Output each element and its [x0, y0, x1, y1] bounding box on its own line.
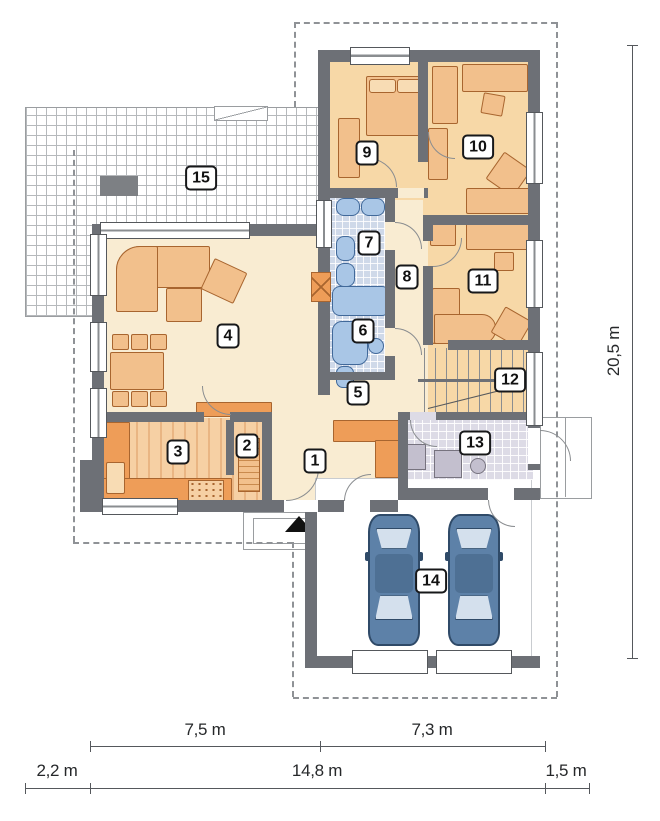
room-label-9: 9: [356, 141, 379, 166]
wall: [305, 510, 317, 668]
dimension-tick: [627, 45, 638, 46]
sink: [336, 198, 360, 216]
bed-pillow: [369, 79, 396, 93]
window: [526, 240, 543, 308]
car-rear-window: [376, 528, 412, 549]
dining-chair: [150, 334, 167, 350]
room-label-10: 10: [462, 135, 494, 160]
property-line: [292, 542, 294, 697]
hall-wardrobe-side: [375, 440, 399, 478]
garage-door: [436, 650, 512, 674]
room-label-5: 5: [347, 381, 370, 406]
appliance: [434, 450, 462, 478]
room-label-6: 6: [352, 319, 375, 344]
dimension-line: [90, 746, 545, 747]
bathroom-window: [316, 200, 332, 248]
bathtub: [332, 286, 390, 316]
wall: [80, 460, 92, 512]
floor-plan: 1 2 3 4 5 6 7 8 9 10 11 12 13 14 15 7,5 …: [0, 0, 660, 821]
wall: [418, 62, 428, 162]
door-opening: [410, 412, 436, 420]
car-mirror: [418, 552, 423, 561]
wall: [92, 412, 204, 422]
wall: [423, 225, 433, 241]
property-line: [294, 22, 557, 24]
dimension-line: [25, 788, 590, 789]
wall: [423, 266, 433, 345]
dining-chair: [112, 334, 129, 350]
dim-1-5: 1,5 m: [545, 761, 586, 781]
dimension-tick: [545, 783, 546, 794]
room-label-4: 4: [217, 324, 240, 349]
dimension-tick: [589, 783, 590, 794]
sink: [361, 198, 385, 216]
car-mirror: [498, 552, 503, 561]
wall: [448, 340, 533, 350]
car-mirror: [365, 552, 370, 561]
car-mirror: [445, 552, 450, 561]
wall: [262, 418, 272, 500]
door-opening: [385, 328, 395, 356]
car-rear-window: [456, 528, 492, 549]
wall: [328, 372, 395, 380]
room-label-1: 1: [304, 449, 327, 474]
room-label-11: 11: [468, 269, 499, 294]
dining-table: [110, 352, 164, 390]
front-door-opening: [284, 500, 318, 512]
terrace-planter: [100, 176, 138, 196]
room-label-8: 8: [396, 265, 419, 290]
property-line: [556, 22, 558, 697]
dimension-tick: [545, 741, 546, 752]
coffee-table: [166, 288, 202, 322]
window: [526, 112, 543, 184]
dim-14-8: 14,8 m: [292, 761, 342, 781]
dimension-tick: [25, 783, 26, 794]
car-roof: [375, 554, 413, 592]
wall: [226, 420, 234, 475]
dimension-tick: [627, 658, 638, 659]
dining-chair: [112, 391, 129, 407]
room-label-13: 13: [459, 431, 491, 456]
dim-7-5: 7,5 m: [184, 720, 225, 740]
window: [90, 388, 107, 438]
wall: [398, 415, 408, 488]
dimension-tick: [320, 741, 321, 752]
car: [448, 514, 500, 646]
dining-chair: [131, 391, 148, 407]
floor-drain: [470, 458, 486, 474]
room-label-2: 2: [236, 434, 259, 459]
dimension-line: [632, 45, 633, 658]
desk-stool: [480, 92, 505, 117]
utility-exterior-door: [528, 428, 540, 464]
room-label-14: 14: [415, 569, 447, 594]
bedroom10-bed: [466, 188, 532, 214]
dim-7-3: 7,3 m: [411, 720, 452, 740]
garage-door: [352, 650, 428, 674]
sofa-left-arm: [116, 246, 158, 312]
dimension-tick: [90, 741, 91, 752]
dim-20-5: 20,5 m: [604, 326, 624, 376]
corner-window-side: [90, 234, 107, 296]
door-opening: [385, 222, 395, 250]
door-opening: [488, 488, 514, 500]
car-roof: [455, 554, 493, 592]
property-line: [73, 542, 293, 544]
property-line: [73, 150, 75, 542]
window: [90, 322, 107, 372]
car: [368, 514, 420, 646]
room-label-12: 12: [494, 368, 526, 393]
bidet: [336, 236, 355, 261]
wall: [423, 215, 533, 225]
corner-window-top: [100, 222, 250, 239]
dining-chair: [150, 391, 167, 407]
room-label-15: 15: [185, 166, 217, 191]
wall: [398, 488, 540, 500]
desk: [462, 64, 528, 92]
property-line: [294, 22, 296, 107]
property-line: [293, 697, 557, 699]
hall-wardrobe-top: [333, 420, 399, 442]
bedroom11-bed: [466, 222, 534, 250]
nightstand: [494, 252, 514, 271]
door-opening: [398, 188, 424, 198]
terrace-step: [214, 106, 268, 121]
window: [526, 352, 543, 426]
wall: [230, 412, 272, 422]
bedroom10-wardrobe: [432, 66, 458, 124]
dining-chair: [131, 334, 148, 350]
car-windshield: [455, 595, 493, 620]
window: [350, 47, 410, 65]
toilet: [336, 263, 355, 287]
room-label-3: 3: [167, 440, 190, 465]
kitchen-sink: [106, 462, 125, 494]
dim-2-2: 2,2 m: [36, 761, 77, 781]
dimension-tick: [90, 783, 91, 794]
door-opening: [344, 500, 370, 512]
fireplace: [311, 272, 331, 302]
car-windshield: [375, 595, 413, 620]
kitchen-window: [102, 498, 178, 515]
room-label-7: 7: [358, 231, 381, 256]
